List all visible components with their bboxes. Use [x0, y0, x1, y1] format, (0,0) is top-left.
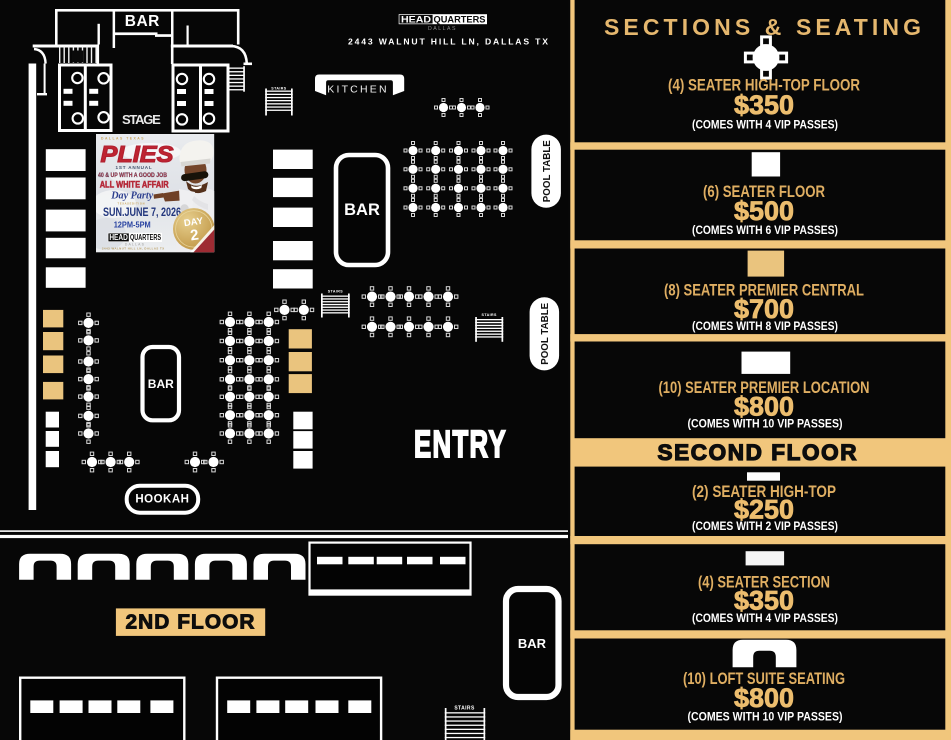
svg-text:$350: $350 — [734, 585, 794, 615]
svg-text:2443 WALNUT HILL LN, DALLAS TX: 2443 WALNUT HILL LN, DALLAS TX — [348, 37, 548, 47]
svg-text:(COMES WITH 4 VIP PASSES): (COMES WITH 4 VIP PASSES) — [692, 119, 838, 131]
svg-text:SECOND FLOOR: SECOND FLOOR — [658, 440, 859, 465]
svg-text:HEAD: HEAD — [109, 233, 128, 242]
svg-text:POOL TABLE: POOL TABLE — [541, 140, 553, 202]
svg-text:ENTRY: ENTRY — [414, 424, 507, 466]
svg-text:$700: $700 — [734, 294, 794, 324]
svg-text:(COMES WITH 2 VIP PASSES): (COMES WITH 2 VIP PASSES) — [692, 521, 838, 533]
svg-text:(COMES WITH 10 VIP PASSES): (COMES WITH 10 VIP PASSES) — [688, 418, 843, 430]
svg-text:PLIES: PLIES — [101, 141, 175, 167]
svg-text:$350: $350 — [734, 90, 794, 120]
svg-text:(COMES WITH 8 VIP PASSES): (COMES WITH 8 VIP PASSES) — [692, 321, 838, 333]
svg-text:(COMES WITH 10 VIP PASSES): (COMES WITH 10 VIP PASSES) — [688, 712, 843, 724]
svg-text:STAGE: STAGE — [122, 112, 162, 127]
svg-text:BAR: BAR — [148, 377, 174, 391]
svg-text:STAIRS: STAIRS — [328, 290, 344, 294]
svg-text:1ST ANNUAL: 1ST ANNUAL — [116, 165, 153, 170]
svg-text:12PM-5PM: 12PM-5PM — [114, 220, 151, 230]
svg-text:(COMES WITH 6 VIP PASSES): (COMES WITH 6 VIP PASSES) — [692, 225, 838, 237]
svg-text:2443 WALNUT HILL LN, DALLAS TX: 2443 WALNUT HILL LN, DALLAS TX — [102, 247, 165, 251]
svg-text:$800: $800 — [734, 683, 794, 713]
svg-text:T E X A S E D I T I O N: T E X A S E D I T I O N — [118, 201, 145, 205]
svg-text:SUN.JUNE 7, 2026: SUN.JUNE 7, 2026 — [103, 207, 181, 219]
svg-text:BAR: BAR — [125, 13, 160, 30]
svg-text:KITCHEN: KITCHEN — [327, 83, 389, 95]
svg-text:HEAD: HEAD — [401, 15, 432, 25]
svg-text:STAIRS: STAIRS — [482, 313, 498, 317]
svg-text:QUARTERS: QUARTERS — [130, 233, 161, 242]
svg-text:POOL TABLE: POOL TABLE — [539, 303, 551, 365]
svg-text:(COMES WITH 4 VIP PASSES): (COMES WITH 4 VIP PASSES) — [692, 613, 838, 625]
svg-text:BAR: BAR — [344, 201, 380, 219]
svg-text:STAIRS: STAIRS — [454, 705, 475, 711]
svg-text:HOOKAH: HOOKAH — [135, 494, 189, 506]
svg-text:QUARTERS: QUARTERS — [434, 15, 486, 25]
svg-text:Day Party: Day Party — [110, 190, 153, 202]
svg-text:BAR: BAR — [518, 636, 547, 651]
svg-text:$800: $800 — [734, 391, 794, 421]
svg-text:2ND FLOOR: 2ND FLOOR — [126, 612, 256, 634]
svg-text:ALL WHITE AFFAIR: ALL WHITE AFFAIR — [100, 179, 169, 190]
svg-text:STAIRS: STAIRS — [271, 86, 287, 90]
svg-text:DALLAS TEXAS: DALLAS TEXAS — [101, 136, 145, 140]
svg-text:$500: $500 — [734, 196, 794, 226]
svg-text:DALLAS: DALLAS — [428, 26, 457, 32]
